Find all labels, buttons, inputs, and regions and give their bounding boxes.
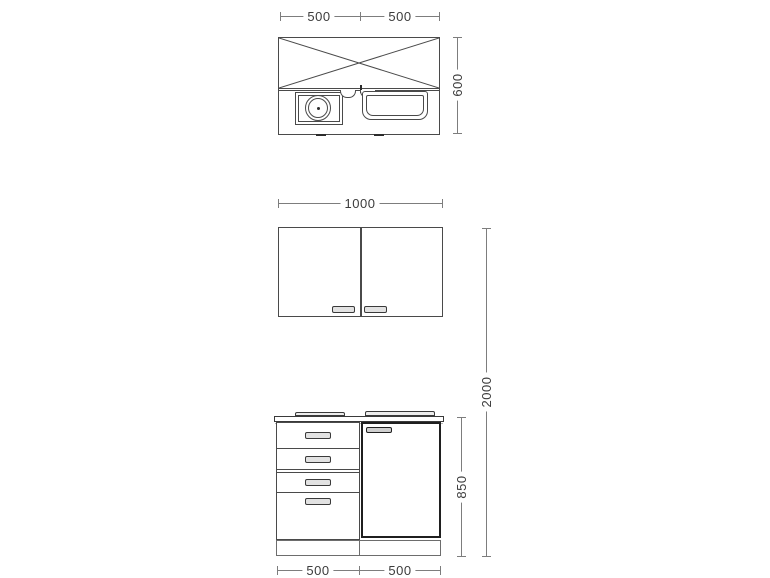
sink-inner-rim [366, 95, 424, 116]
base-drawer-unit [276, 422, 360, 540]
dim-label-plan-width-left: 500 [303, 10, 334, 24]
faucet-arc-left-icon [340, 90, 356, 98]
hob-burner-icon [305, 95, 331, 121]
drawer-4 [277, 494, 359, 539]
foot-mark-left [316, 134, 326, 136]
dim-label-base-width-left: 500 [302, 564, 333, 578]
wall-cabinet-left-door-handle [332, 306, 355, 313]
drawer-2-handle [305, 456, 331, 463]
foot-mark-right [374, 134, 384, 136]
dim-wall-cabinet-width: 1000 [278, 197, 443, 211]
drawer-2 [277, 450, 359, 470]
drawer-3 [277, 474, 359, 493]
dim-plan-widths: 500 500 [280, 10, 440, 24]
plinth [276, 540, 441, 556]
dim-label-base-width-right: 500 [384, 564, 415, 578]
plan-view [278, 37, 440, 135]
dim-plan-depth: 600 [451, 37, 465, 134]
dim-base-cabinet-height: 850 [455, 417, 469, 557]
dim-label-plan-depth: 600 [451, 69, 465, 100]
dim-label-plan-width-right: 500 [384, 10, 415, 24]
hob [295, 92, 343, 125]
drawer-1 [277, 423, 359, 449]
technical-drawing-canvas: 500 500 [0, 0, 770, 578]
dim-base-widths: 500 500 [277, 564, 441, 578]
dim-label-total-height: 2000 [480, 373, 494, 412]
drawer-1-handle [305, 432, 331, 439]
base-door-unit [361, 422, 441, 538]
dim-label-wall-cabinet-width: 1000 [341, 197, 380, 211]
drawer-4-handle [305, 498, 331, 505]
base-door-handle [366, 427, 392, 433]
wall-cabinet-right-door-handle [364, 306, 387, 313]
plinth-joint-line [359, 541, 360, 555]
burner-center-dot [317, 107, 320, 110]
dim-total-height: 2000 [480, 228, 494, 557]
wall-cabinet-door-divider [360, 228, 362, 316]
wall-cabinet [278, 227, 443, 317]
sink [362, 91, 428, 120]
cross-icon [279, 38, 439, 88]
drawer-gap-line [277, 471, 359, 473]
dim-label-base-cabinet-height: 850 [455, 471, 469, 502]
drawer-3-handle [305, 479, 331, 486]
